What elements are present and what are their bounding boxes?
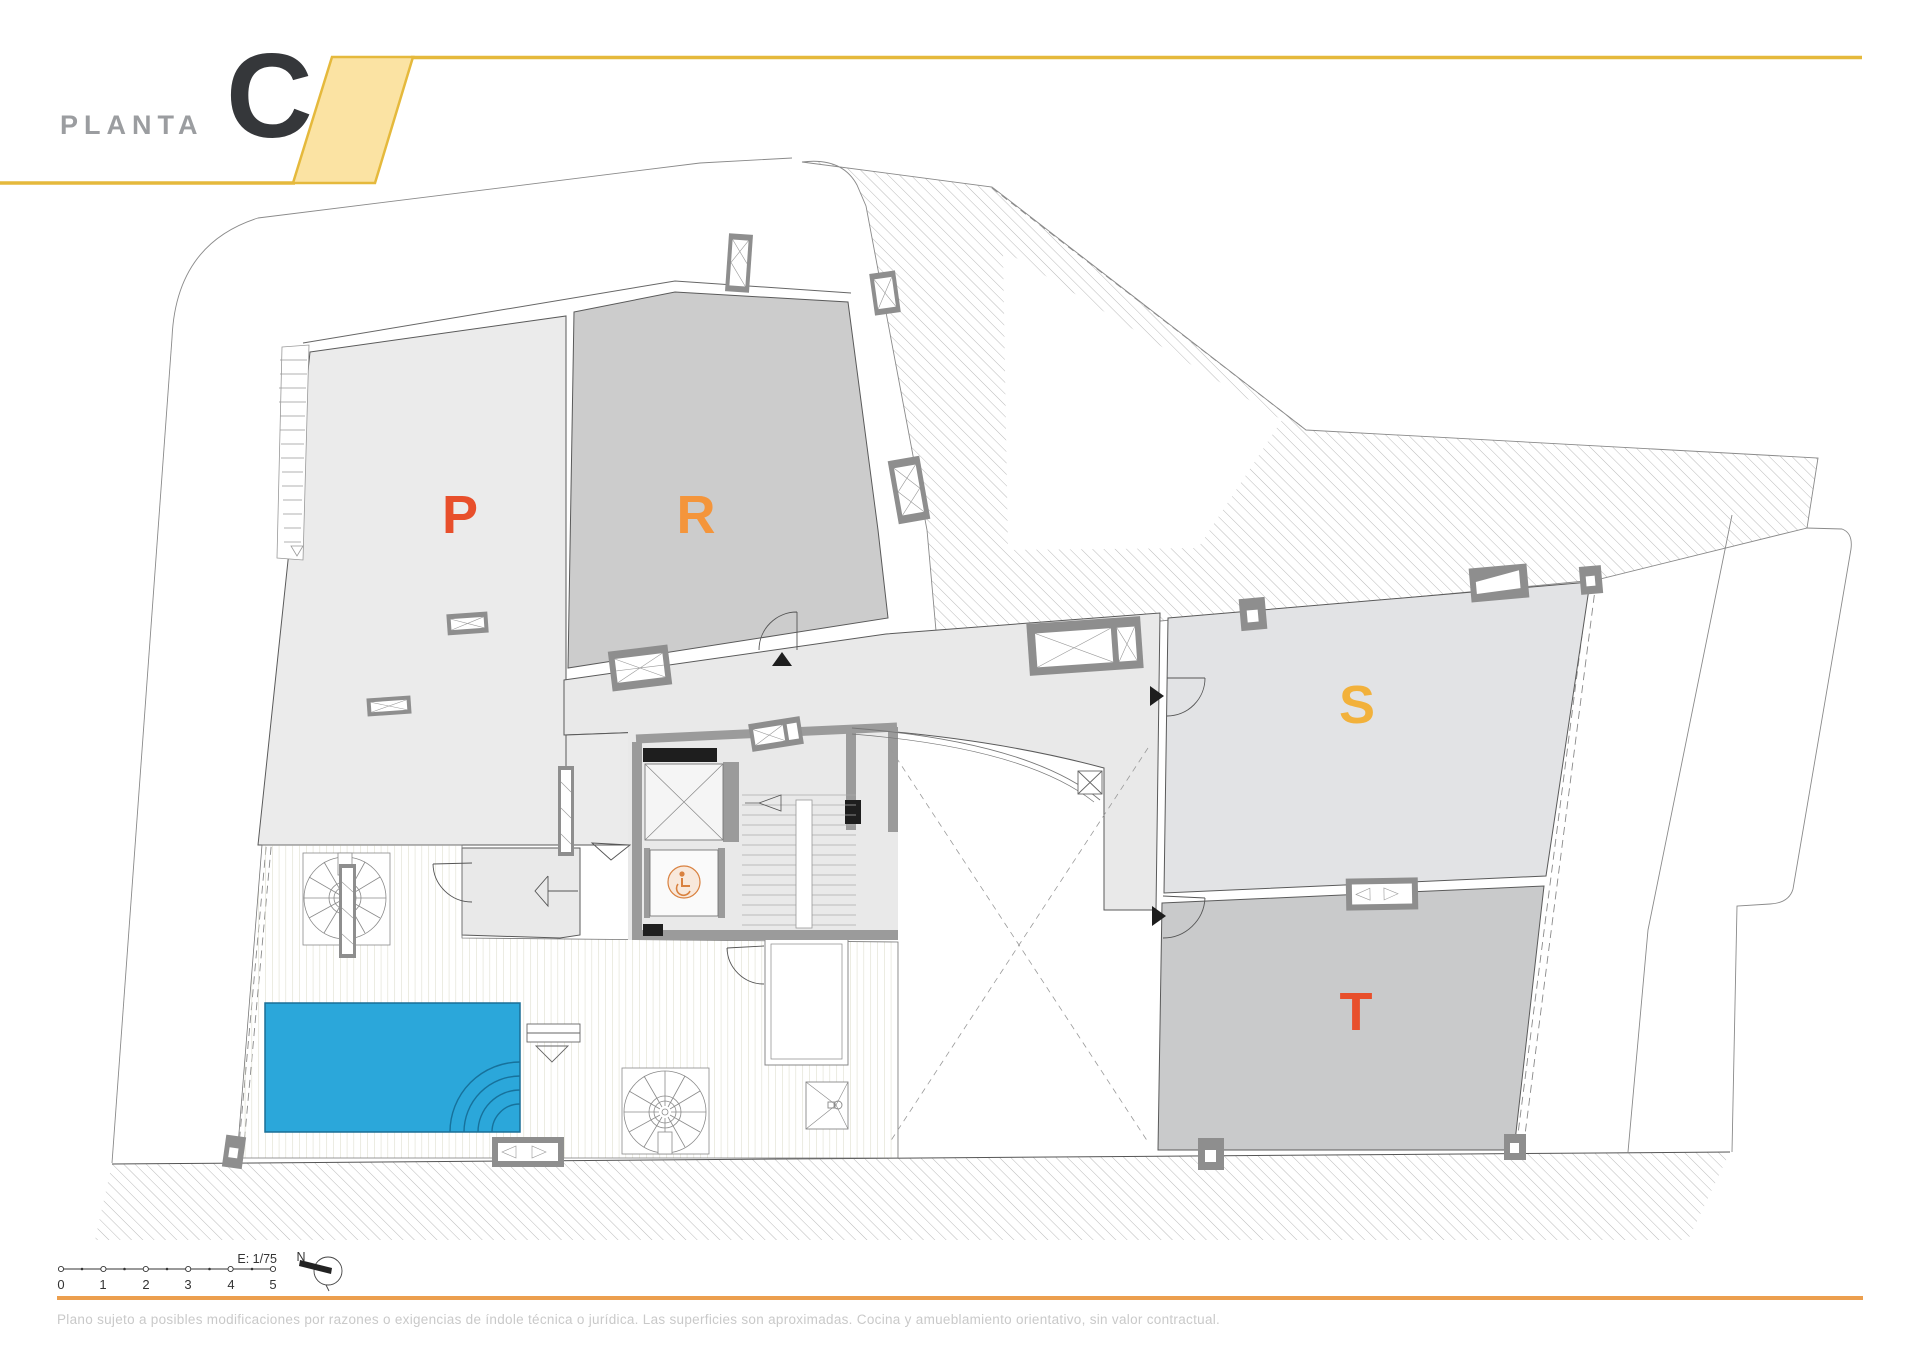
pool [265,1003,520,1132]
scale-tick-2: 2 [142,1277,149,1292]
footer-disclaimer: Plano sujeto a posibles modificaciones p… [57,1312,1220,1327]
north-arrow-icon: N [296,1250,342,1291]
spiral-stair-lower [622,1068,709,1154]
street-strip [95,1152,1730,1240]
room-label-t: T [1340,982,1373,1042]
accessible-elevator [650,850,718,916]
scale-tick-1: 1 [99,1277,106,1292]
exterior-stair [277,345,309,560]
footer-rule [57,1296,1863,1300]
wheelchair-icon [668,866,700,898]
planter [765,938,848,1065]
vent-box [1078,771,1102,794]
scale-bar: 0 1 2 3 4 5 E: 1/75 [57,1252,277,1292]
scale-tick-4: 4 [227,1277,234,1292]
vestibule [462,848,580,938]
scale-tick-5: 5 [269,1277,276,1292]
room-s [1164,582,1590,893]
accent-parallelogram [293,57,413,183]
room-r [568,292,888,668]
neighbour-building-hatch [802,161,1818,642]
room-label-r: R [677,485,716,545]
floor-plan: P R S T 0 1 2 3 4 5 E: 1/75 N [0,0,1920,1357]
header-accent [0,57,1862,183]
north-label: N [296,1250,305,1264]
shower-tray [806,1082,848,1129]
room-label-p: P [442,485,478,545]
lintel [643,748,717,762]
scale-ratio-label: E: 1/75 [237,1252,277,1266]
room-label-s: S [1339,675,1375,735]
scale-tick-3: 3 [184,1277,191,1292]
scale-tick-0: 0 [57,1277,64,1292]
building-core [628,724,898,940]
elevator-shaft [645,764,723,840]
